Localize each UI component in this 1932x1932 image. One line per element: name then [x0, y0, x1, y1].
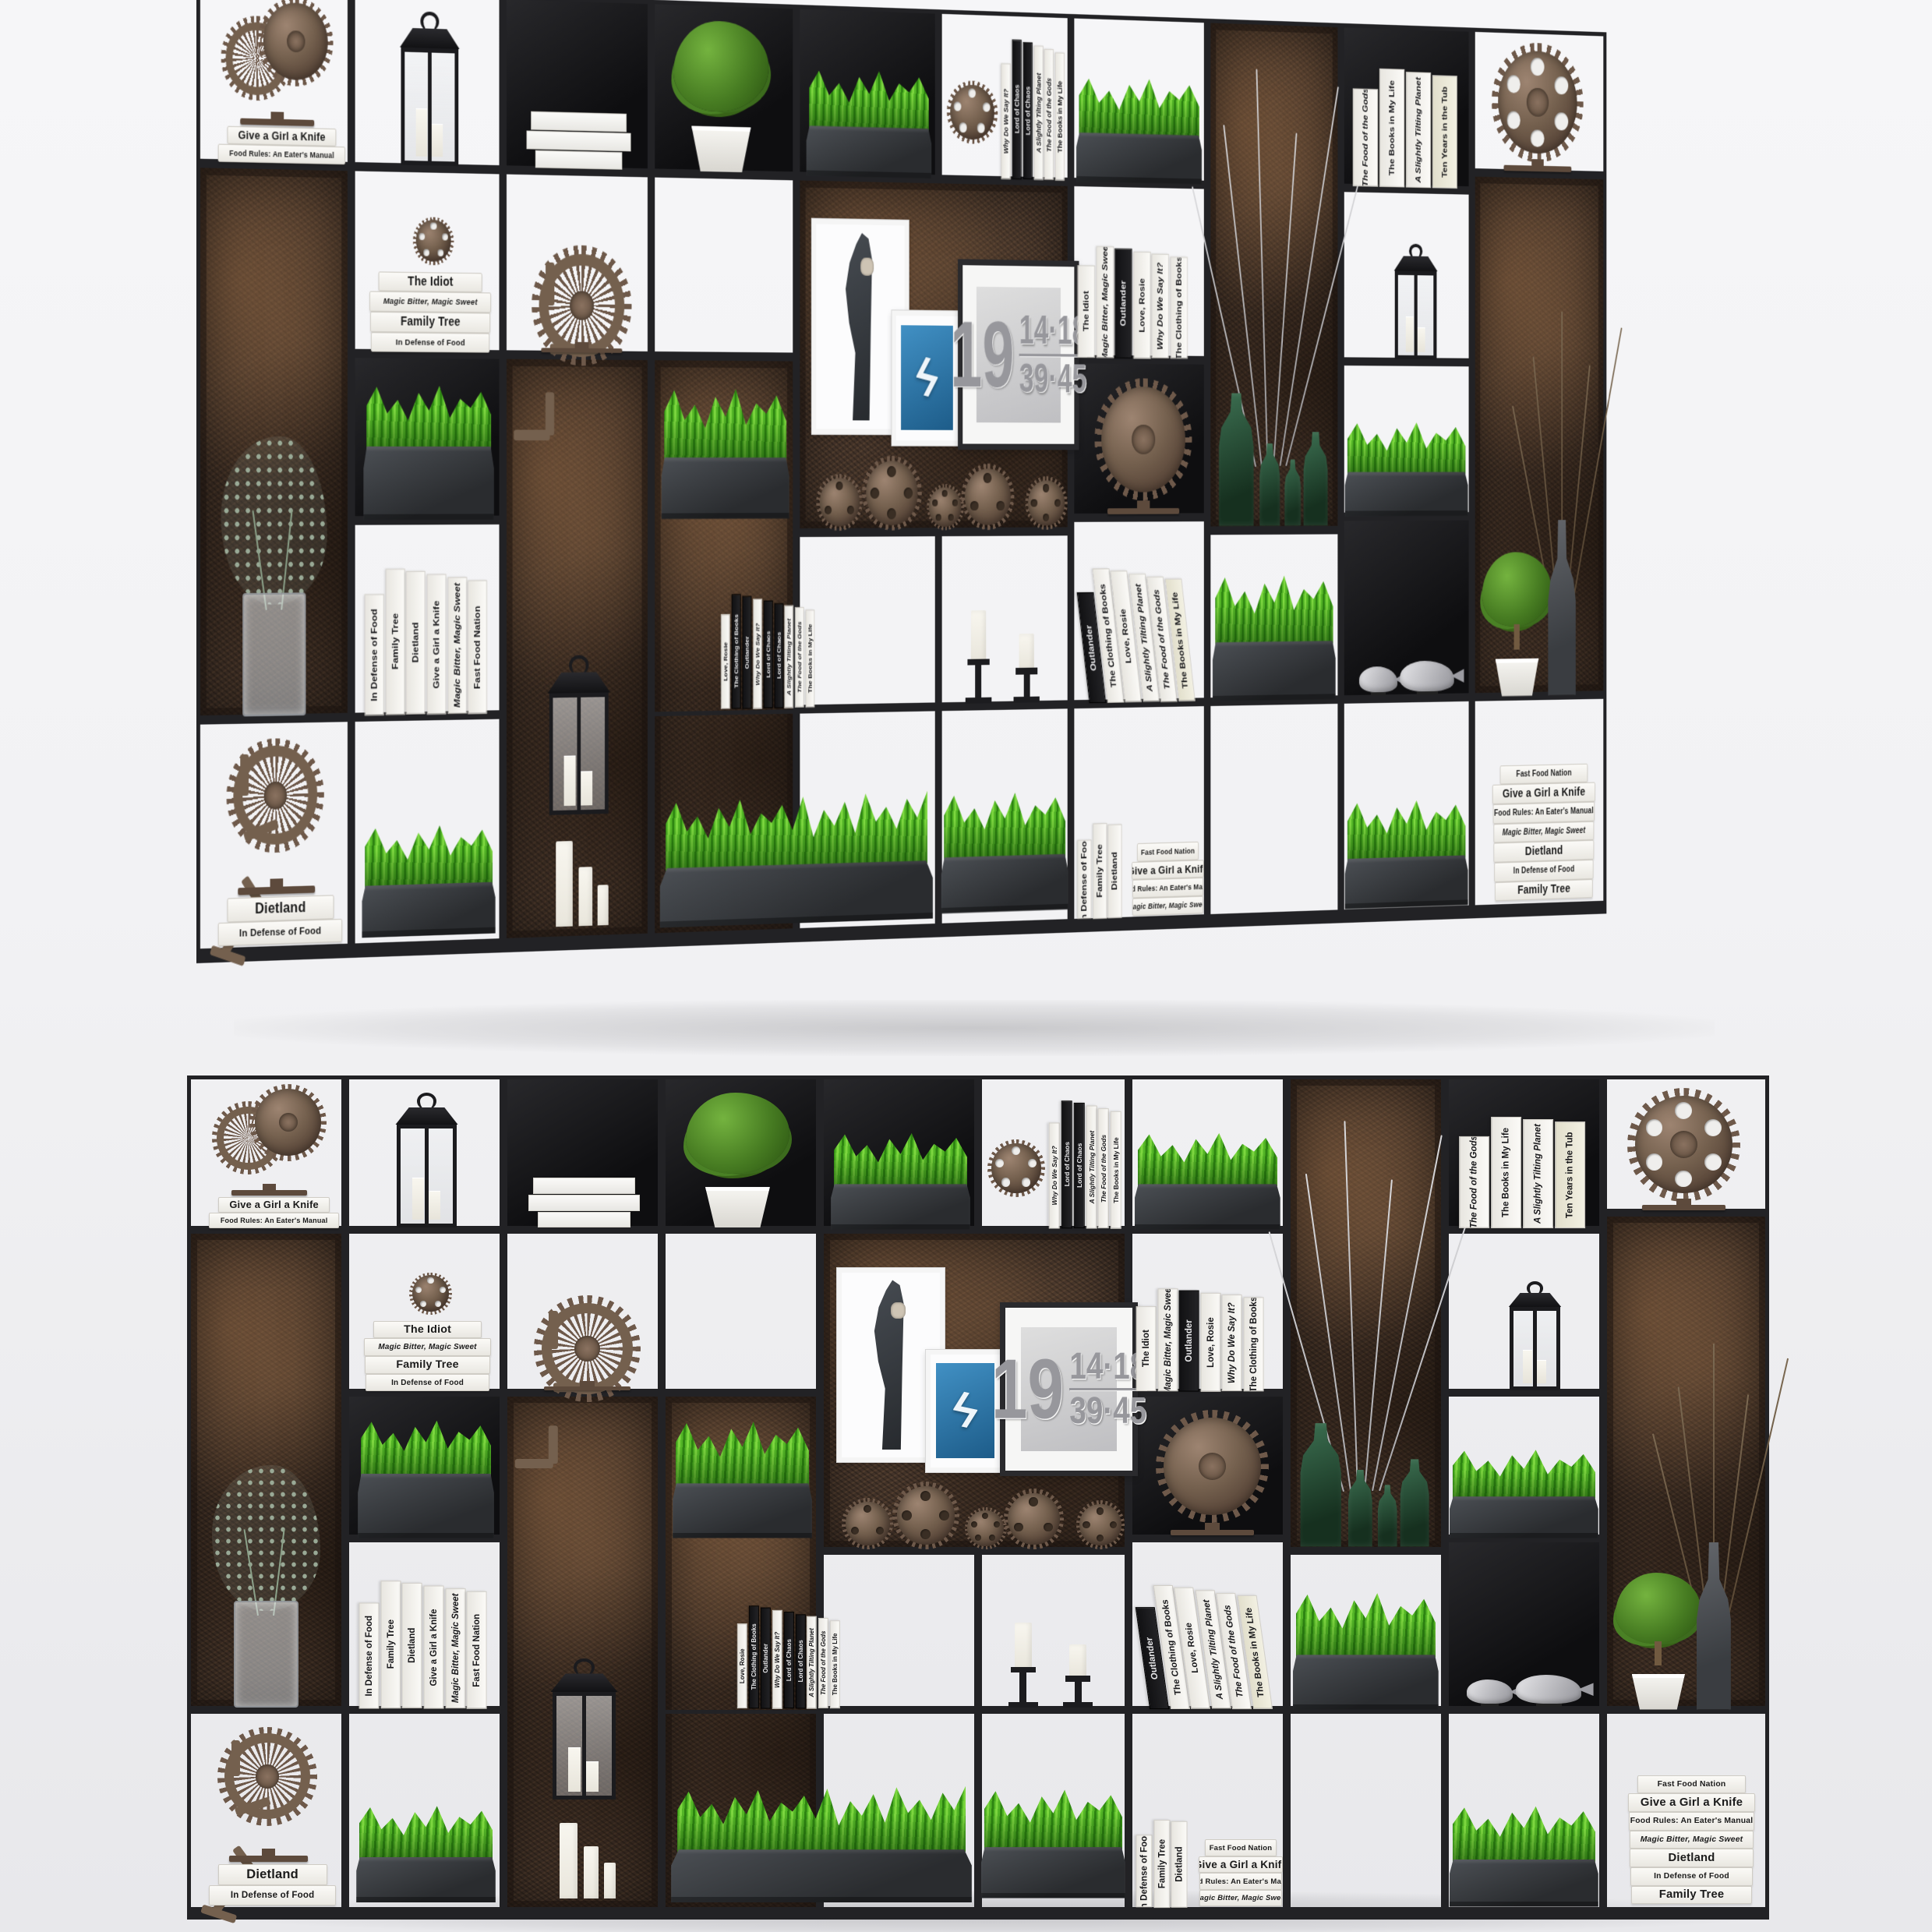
book-title: Give a Girl a Knife [1199, 1859, 1282, 1870]
book-row: The IdiotMagic Bitter, Magic SweetOutlan… [1136, 1285, 1267, 1391]
picture-frame-numbers: 1914·1839·45 [958, 259, 1079, 450]
book: The Idiot [373, 1321, 482, 1339]
candle [1523, 1351, 1532, 1384]
book: Why Do We Say It? [1152, 254, 1169, 358]
grass-blades [365, 817, 493, 888]
book: Magic Bitter, Magic Sweet [446, 1588, 466, 1708]
book-title: Love, Rosie [1119, 609, 1133, 663]
book-title: Magic Bitter, Magic Sweet [453, 583, 461, 708]
book-row: Why Do We Say It?Lord of ChaosLord of Ch… [1049, 1097, 1125, 1228]
book: Give a Girl a Knife [1199, 1856, 1282, 1874]
planter-box [358, 1474, 494, 1538]
book-title: Lord of Chaos [796, 1641, 804, 1683]
book-stack: DietlandIn Defense of Food [217, 893, 344, 947]
gear-sculpture-holes [1622, 1088, 1745, 1210]
book: Fast Food Nation [467, 1591, 487, 1709]
book: The Food of the Gods [818, 1618, 828, 1708]
book-row-leaning: OutlanderThe Clothing of BooksLove, Rosi… [1132, 1581, 1277, 1709]
candle [586, 1762, 599, 1792]
lantern-body [553, 1692, 616, 1800]
book: Outlander [1179, 1291, 1199, 1392]
book: The Books in My Life [1491, 1117, 1521, 1228]
gear-icon [1627, 1088, 1741, 1202]
gray-bottle [1690, 1542, 1738, 1710]
book-title: The Food of the Gods [1362, 89, 1369, 187]
candle [581, 772, 592, 806]
book: Family Tree [370, 312, 491, 333]
book-title: Love, Rosie [722, 642, 729, 681]
grass-planter [362, 817, 496, 938]
grass-blades [1296, 1585, 1436, 1658]
book-row: In Defense of FoodFamily TreeDietland [1078, 819, 1125, 919]
grass-blades [1079, 70, 1199, 138]
book-title: Give a Girl a Knife [429, 1609, 439, 1686]
plant-foliage [1482, 552, 1552, 627]
book [538, 1212, 630, 1228]
book-title: Magic Bitter, Magic Sweet [450, 1594, 460, 1704]
book-title: A Slightly Tilting Planet [1534, 1124, 1543, 1224]
book-title: Fast Food Nation [472, 1613, 482, 1687]
candle [584, 1846, 599, 1898]
gear-icon [961, 464, 1014, 530]
planter-box [1213, 641, 1336, 701]
book: Family Tree [1154, 1820, 1171, 1908]
book-title: Outlander [762, 1644, 769, 1673]
planter-box [1135, 1184, 1280, 1229]
book-title: Magic Bitter, Magic Sweet [1199, 1894, 1281, 1902]
book-title: Dietland [1669, 1852, 1715, 1864]
gear-small [408, 1273, 453, 1317]
book-title: In Defense of Food [231, 1891, 315, 1900]
candle [1015, 1623, 1032, 1669]
book: Lord of Chaos [764, 601, 773, 708]
grass-planter [1213, 567, 1336, 701]
book-stack: Give a Girl a KnifeFood Rules: An Eater'… [207, 1196, 341, 1229]
plant-pot [1496, 658, 1538, 696]
gear-icon [249, 1084, 327, 1161]
shelf-cell [1207, 699, 1341, 918]
book-stack: The IdiotMagic Bitter, Magic SweetFamily… [362, 1318, 492, 1392]
lantern [391, 1093, 462, 1228]
shelf-base [187, 1911, 1769, 1920]
book-title: Love, Rosie [1206, 1317, 1216, 1368]
grass-blades [359, 1800, 493, 1860]
book: The Clothing of Books [732, 594, 741, 709]
book-stack: Give a Girl a KnifeFood Rules: An Eater'… [217, 123, 347, 164]
lantern [1391, 243, 1441, 360]
green-bottle [1376, 1485, 1398, 1546]
lantern [396, 10, 464, 167]
candle [1019, 634, 1034, 669]
planter-box [1345, 472, 1468, 517]
book: Fast Food Nation [1205, 1839, 1277, 1856]
book-stack: Fast Food NationGive a Girl a KnifeFood … [1198, 1836, 1284, 1906]
candle [604, 1863, 616, 1898]
book: Love, Rosie [1133, 251, 1150, 358]
ring [860, 257, 874, 276]
book-title: A Slightly Tilting Planet [1087, 1131, 1095, 1204]
candlesticks [1007, 1598, 1108, 1708]
planter-box [831, 1184, 970, 1229]
book-title: Dietland [1111, 852, 1119, 891]
green-bottle [1347, 1470, 1374, 1547]
book-title: A Slightly Tilting Planet [808, 1628, 815, 1697]
book-title: Magic Bitter, Magic Sweet [1641, 1835, 1743, 1844]
fish-icon [1359, 666, 1397, 693]
book-title: Magic Bitter, Magic Sweet [1101, 246, 1109, 358]
book: A Slightly Tilting Planet [1086, 1106, 1097, 1229]
book: The Books in My Life [830, 1620, 840, 1708]
book-title: Magic Bitter, Magic Sweet [378, 1343, 476, 1351]
book-title: Family Tree [396, 1358, 458, 1371]
book-title: The Food of the Gods [1046, 77, 1053, 151]
book-title: Dietland [1525, 844, 1563, 858]
book-title: Family Tree [1157, 1838, 1167, 1888]
book-title: The Food of the Gods [796, 622, 803, 694]
book-title: Lord of Chaos [1075, 1143, 1083, 1188]
gear-sculpture-large [1090, 377, 1196, 514]
book: In Defense of Food [365, 595, 384, 716]
book: Lord of Chaos [784, 1612, 794, 1708]
lantern-body [549, 693, 609, 815]
book: The Idiot [1136, 1306, 1157, 1391]
book: The Books in My Life [1111, 1111, 1121, 1229]
book: Fast Food Nation [1137, 842, 1199, 862]
planter-box [660, 860, 933, 927]
book: Magic Bitter, Magic Sweet [1493, 821, 1594, 843]
book-title: In Defense of Food [370, 609, 380, 701]
book-title: Dietland [408, 1628, 417, 1663]
lightning-icon: ϟ [911, 345, 943, 410]
grass-planter [1450, 1800, 1598, 1907]
grass-planter [831, 1127, 970, 1230]
grass-blades [664, 380, 786, 461]
gear-icon [217, 1727, 316, 1826]
book: Dietland [227, 895, 334, 923]
book-title: Family Tree [401, 315, 461, 330]
plant-foliage [686, 1093, 789, 1174]
candle [1537, 1361, 1546, 1383]
book-title: Lord of Chaos [765, 631, 771, 678]
eucalyptus-foliage [212, 1465, 320, 1611]
book: The Books in My Life [1055, 52, 1065, 181]
plant-pot [705, 1187, 770, 1227]
book: The Books in My Life [806, 609, 815, 708]
gear-icon [1004, 1489, 1065, 1549]
lantern-cap [548, 672, 610, 694]
book-title: Food Rules: An Eater's Manual [229, 149, 334, 161]
green-bottle [1302, 432, 1329, 525]
book-title: Dietland [246, 1867, 298, 1882]
gear-icon [409, 1273, 452, 1316]
plant-pot [1632, 1674, 1685, 1710]
gear-small [986, 1139, 1046, 1227]
book: Outlander [1115, 249, 1132, 358]
book: Magic Bitter, Magic Sweet [369, 291, 491, 313]
book: Magic Bitter, Magic Sweet [447, 577, 466, 715]
book-title: Lord of Chaos [786, 1639, 793, 1681]
book: Give a Girl a Knife [218, 1197, 330, 1213]
planter-box [807, 125, 931, 178]
gear-sculpture-wheel [220, 737, 333, 896]
gear-icon [1492, 41, 1584, 163]
book-title: Family Tree [1096, 844, 1104, 898]
book: Food Rules: An Eater's Manual [1199, 1873, 1282, 1890]
book-title: Dietland [411, 623, 421, 663]
candle [971, 610, 987, 661]
gear-icon [1076, 1500, 1125, 1549]
gear-sculpture-double [223, 0, 331, 126]
boxwood-plant [683, 1093, 791, 1228]
lantern-cap [551, 1673, 618, 1692]
book: Fast Food Nation [1499, 763, 1588, 785]
grass-blades [1453, 1800, 1595, 1862]
book: A Slightly Tilting Planet [1406, 72, 1431, 188]
candles [557, 1817, 623, 1898]
grass-blades [1215, 567, 1333, 645]
book: The Clothing of Books [1244, 1297, 1264, 1391]
book-title: In Defense of Food [1139, 1835, 1149, 1907]
gear-sculpture-double [214, 1084, 325, 1196]
candlesticks [964, 583, 1053, 704]
grass-blades [366, 378, 492, 450]
book-title: Why Do We Say It? [774, 1631, 781, 1687]
book-title: Outlander [1185, 1319, 1194, 1362]
book: Dietland [407, 571, 426, 715]
book: Lord of Chaos [1061, 1100, 1072, 1228]
book: A Slightly Tilting Planet [807, 1616, 817, 1709]
book-title: In Defense of Food [1513, 865, 1574, 876]
gear-icon [1025, 477, 1068, 530]
gear-sculpture-spinner [522, 242, 641, 353]
fish-icon [1467, 1679, 1513, 1704]
candles [553, 832, 616, 926]
book: In Defense of Food [209, 1885, 336, 1906]
gear-icon [892, 1482, 960, 1549]
green-glass-bottles [1298, 1418, 1434, 1547]
book: Ten Years in the Tub [1432, 76, 1457, 189]
book: The Clothing of Books [1171, 256, 1188, 358]
book: The Food of the Gods [1044, 49, 1054, 180]
grass-planter [673, 1414, 812, 1538]
book-title: Outlander [743, 636, 750, 669]
lantern-cap [1509, 1293, 1562, 1307]
book: The Books in My Life [1379, 69, 1404, 188]
book-title: Magic Bitter, Magic Sweet [1132, 900, 1203, 912]
lantern [546, 1658, 622, 1800]
book-title: The Clothing of Books [733, 614, 740, 688]
planter-box [671, 1849, 972, 1902]
plant-foliage [1616, 1573, 1701, 1644]
green-bottle [1217, 393, 1256, 525]
book: Why Do We Say It? [1049, 1123, 1060, 1229]
book: Why Do We Say It? [772, 1610, 782, 1709]
book-title: Magic Bitter, Magic Sweet [383, 297, 478, 308]
planter-box [673, 1483, 812, 1538]
book: Magic Bitter, Magic Sweet [1630, 1831, 1754, 1849]
candle [560, 1823, 577, 1898]
book: Give a Girl a Knife [1628, 1793, 1755, 1812]
book-row: The Food of the GodsThe Books in My Life… [1459, 1114, 1588, 1228]
book: Magic Bitter, Magic Sweet [1097, 246, 1114, 358]
book [527, 130, 630, 151]
grass-planter [1076, 69, 1202, 184]
book-title: Fast Food Nation [1141, 846, 1195, 857]
gear-small [945, 80, 998, 178]
book-title: Family Tree [1517, 882, 1570, 897]
shelf-front-view: ϟ1914·1839·45Give a Girl a KnifeFood Rul… [187, 1062, 1769, 1920]
gears-collection [817, 471, 1064, 531]
book: Family Tree [1093, 822, 1107, 918]
book-title: Why Do We Say It? [1003, 89, 1010, 154]
grass-blades [1347, 416, 1466, 475]
planter-box [662, 457, 789, 519]
book-title: Outlander [1145, 1637, 1160, 1679]
book-title: The Clothing of Books [1175, 256, 1183, 358]
book: Give a Girl a Knife [424, 1586, 444, 1709]
book-stack: Fast Food NationGive a Girl a KnifeFood … [1491, 758, 1596, 902]
book-row: In Defense of FoodFamily TreeDietlandGiv… [359, 1577, 490, 1708]
book: Give a Girl a Knife [1492, 782, 1595, 804]
planter-box [363, 446, 493, 520]
eucalyptus-foliage [221, 436, 327, 605]
plant-trunk [1655, 1641, 1662, 1666]
book: Outlander [761, 1608, 771, 1709]
grass-planter [941, 783, 1068, 913]
candle [556, 841, 573, 926]
book-row: Love, RosieThe Clothing of BooksOutlande… [737, 1602, 845, 1708]
book: Food Rules: An Eater's Manual [1132, 878, 1203, 898]
book: Why Do We Say It? [1222, 1294, 1242, 1391]
gear-icon [227, 737, 324, 854]
gray-bottle-body [1543, 520, 1581, 695]
grass-blades [944, 783, 1065, 860]
candle [1406, 317, 1414, 352]
book-stack: Fast Food NationGive a Girl a KnifeFood … [1131, 839, 1204, 917]
book-title: Lord of Chaos [1013, 85, 1020, 134]
book: In Defense of Food [1630, 1867, 1752, 1886]
grass-blades [1347, 792, 1466, 861]
book: A Slightly Tilting Planet [1033, 46, 1043, 180]
candle [597, 885, 608, 925]
book: Food Rules: An Eater's Manual [209, 1213, 339, 1228]
book-title: The Books in My Life [1112, 1137, 1120, 1203]
book: Why Do We Say It? [1001, 64, 1011, 179]
book-title: The Clothing of Books [751, 1624, 758, 1690]
lantern [1505, 1281, 1565, 1391]
book-title: The Books in My Life [1057, 80, 1064, 152]
gear-icon [947, 80, 998, 145]
lantern-body [1395, 271, 1437, 360]
book: In Defense of Food [1495, 860, 1594, 882]
book-title: Magic Bitter, Magic Sweet [1163, 1288, 1172, 1391]
planter-box [356, 1857, 496, 1902]
book-title: In Defense of Food [391, 1379, 464, 1387]
candle [1069, 1644, 1086, 1677]
book-title: Lord of Chaos [775, 632, 782, 679]
book [535, 150, 623, 170]
book-title: In Defense of Food [1080, 840, 1088, 920]
lantern-body [1510, 1307, 1560, 1390]
fish-icon [1516, 1675, 1581, 1704]
book-title: Why Do We Say It? [754, 622, 761, 684]
book-title: Love, Rosie [739, 1648, 746, 1683]
book-title: A Slightly Tilting Planet [1035, 73, 1042, 154]
book-title: Fast Food Nation [473, 606, 482, 689]
grass-blades [361, 1414, 492, 1476]
book: Why Do We Say It? [753, 599, 762, 708]
book: In Defense of Food [366, 1374, 490, 1392]
book: The Food of the Gods [795, 607, 804, 708]
book: Magic Bitter, Magic Sweet [1158, 1288, 1178, 1391]
hand-print [838, 232, 882, 420]
grass-planter [363, 378, 493, 521]
book: Love, Rosie [1201, 1293, 1221, 1392]
book-title: Why Do We Say It? [1157, 263, 1164, 350]
book-row: The Food of the GodsThe Books in My Life… [1353, 64, 1460, 189]
book: The Idiot [1078, 266, 1095, 358]
floor-shadow [234, 1000, 1715, 1056]
glass-vase [242, 593, 306, 717]
planter-box [1450, 1860, 1598, 1907]
stacked-papers [528, 1174, 639, 1227]
gear-sculpture-large [1150, 1410, 1273, 1536]
lightning-icon: ϟ [948, 1382, 984, 1440]
book-title: The Idiot [408, 274, 453, 289]
book-title: Give a Girl a Knife [1132, 862, 1203, 877]
green-bottle [1258, 443, 1281, 525]
book: Lord of Chaos [1012, 39, 1022, 179]
eucalyptus-vase [221, 436, 327, 717]
book: Magic Bitter, Magic Sweet [1132, 896, 1203, 917]
gear-icon [965, 1507, 1007, 1549]
gears-collection [842, 1496, 1120, 1549]
book-title: Food Rules: An Eater's Manual [1494, 807, 1594, 818]
book-title: In Defense of Food [365, 1616, 374, 1697]
lantern-cap [395, 1107, 457, 1125]
candle [416, 109, 427, 157]
book-row: In Defense of FoodFamily TreeDietlandGiv… [365, 563, 490, 715]
grass-blades [676, 1414, 810, 1486]
book-title: Magic Bitter, Magic Sweet [1503, 826, 1586, 838]
book: Give a Girl a Knife [1132, 860, 1203, 880]
grass-planter [358, 1414, 494, 1538]
book-title: Ten Years in the Tub [1441, 87, 1449, 178]
book-title: Fast Food Nation [1658, 1780, 1726, 1789]
book: A Slightly Tilting Planet [1523, 1119, 1553, 1228]
grass-planter [1345, 416, 1468, 517]
book-title: The Idiot [1083, 291, 1090, 332]
lantern-body [397, 1125, 457, 1227]
book [533, 1178, 635, 1194]
candle [432, 125, 443, 157]
lantern [543, 654, 614, 815]
book: Dietland [218, 1864, 327, 1885]
candle [412, 1178, 424, 1220]
book: Outlander [743, 596, 752, 709]
gear-icon [817, 474, 863, 531]
book-title: Food Rules: An Eater's Manual [221, 1217, 328, 1224]
green-bottle [1398, 1459, 1431, 1546]
book-stack: Fast Food NationGive a Girl a KnifeFood … [1626, 1770, 1756, 1905]
book-title: In Defense of Food [396, 337, 465, 348]
hand-print [866, 1280, 915, 1450]
book-title: A Slightly Tilting Planet [1415, 77, 1422, 183]
book-title: Give a Girl a Knife [1503, 786, 1585, 801]
book: In Defense of Food [1078, 840, 1092, 920]
grass-planter [981, 1782, 1125, 1898]
book: Family Tree [1631, 1886, 1752, 1905]
